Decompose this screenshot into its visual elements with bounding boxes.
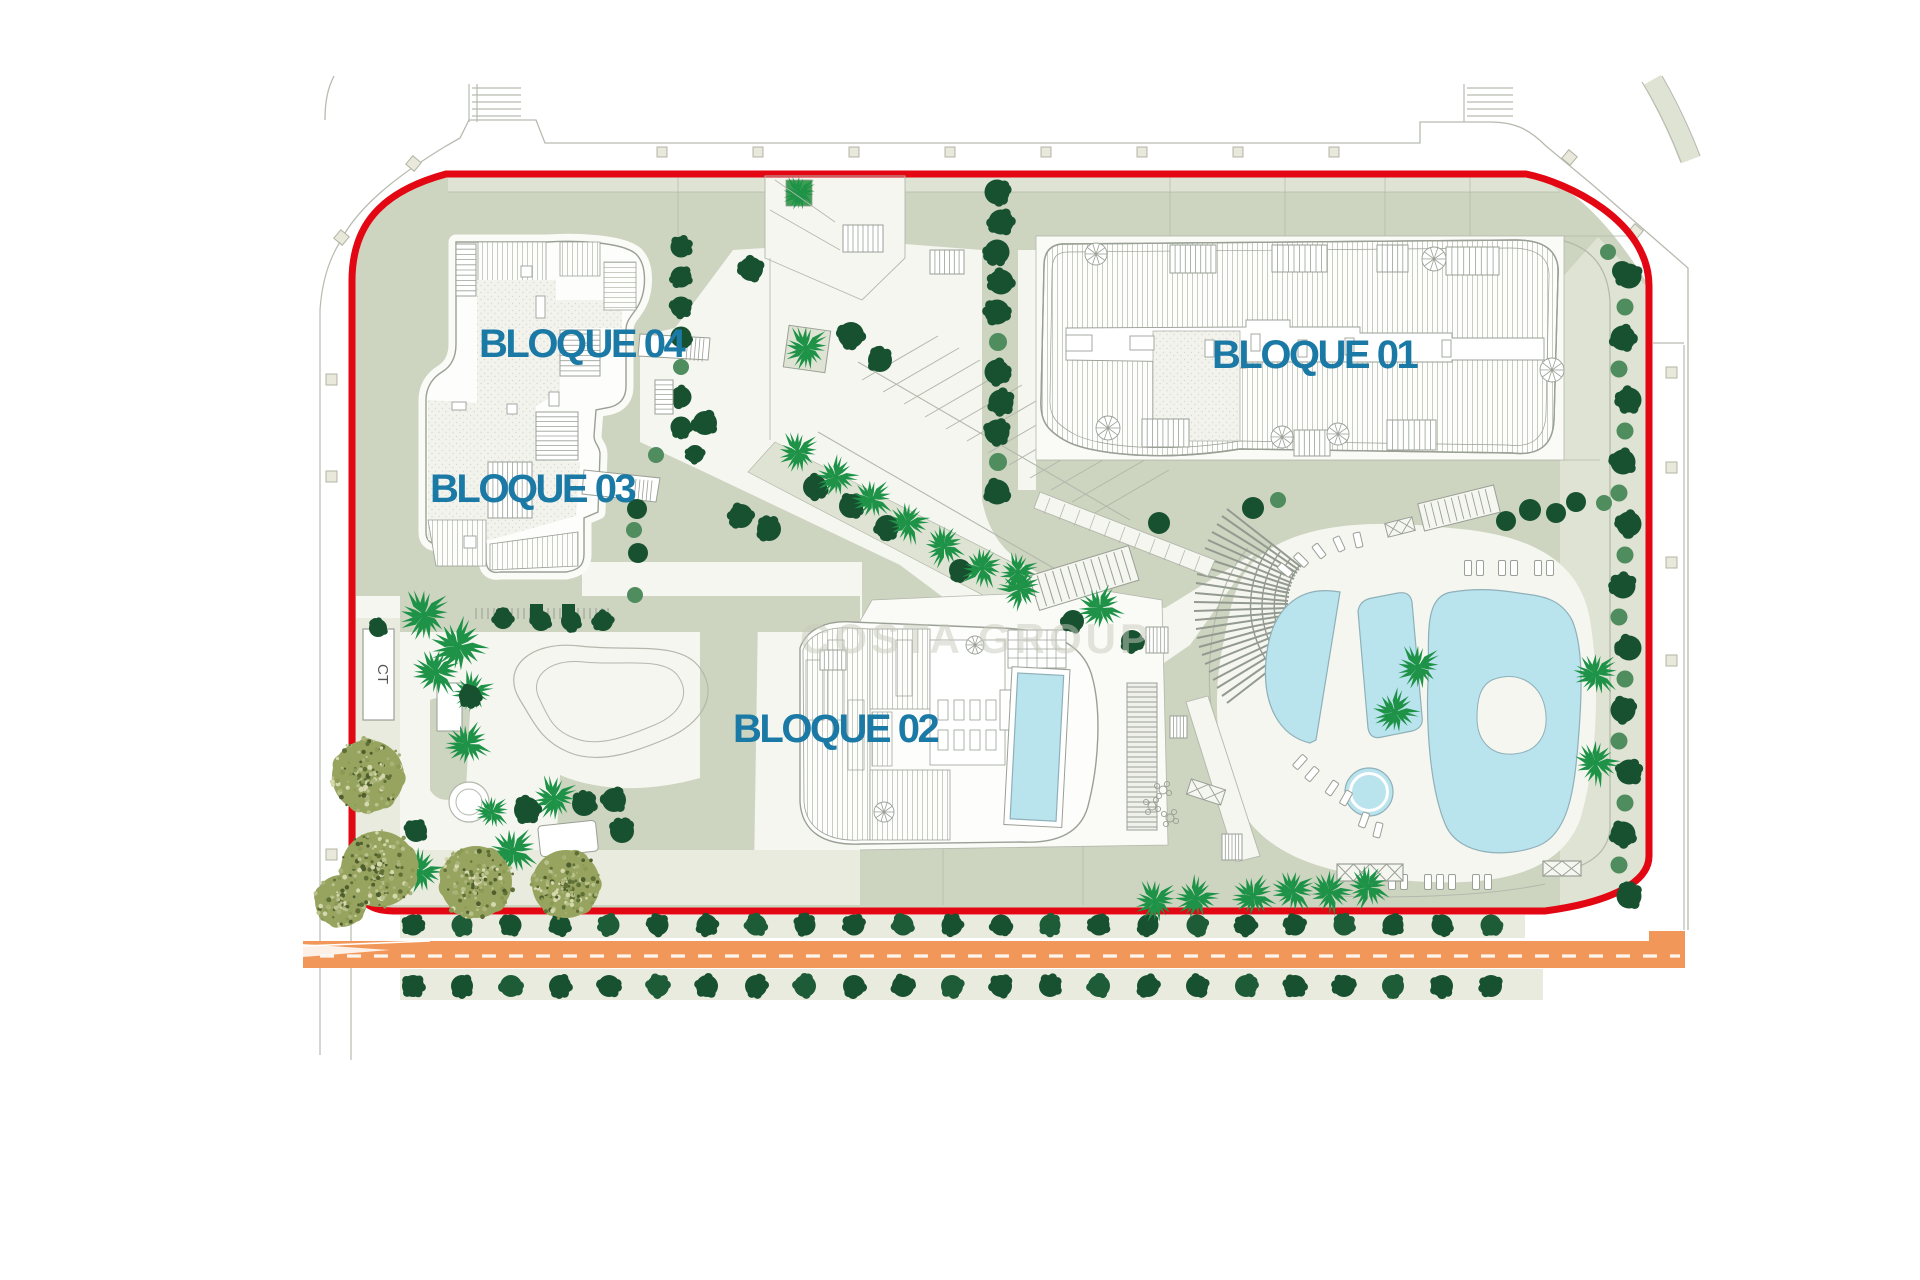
svg-text:BLOQUE 02: BLOQUE 02	[733, 707, 938, 751]
svg-text:COSTA GROUP: COSTA GROUP	[800, 615, 1152, 662]
svg-text:BLOQUE 04: BLOQUE 04	[479, 322, 686, 366]
svg-text:BLOQUE 01: BLOQUE 01	[1212, 333, 1418, 377]
svg-text:CT: CT	[374, 664, 391, 684]
svg-text:BLOQUE 03: BLOQUE 03	[430, 467, 635, 511]
